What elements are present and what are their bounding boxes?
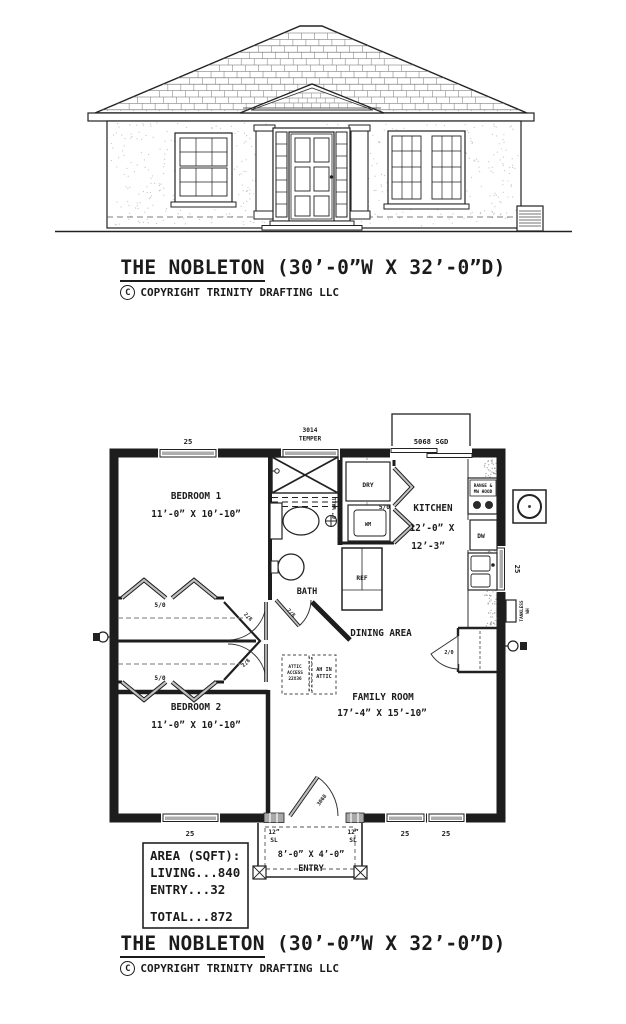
plan-dimensions: (30’-0”W X 32’-0”D) <box>265 932 506 955</box>
bedroom1-dims: 11’-0” X 10’-10” <box>151 509 241 520</box>
kitchen-sink <box>468 553 497 590</box>
elevation-window-left <box>171 133 236 207</box>
window-bedroom2: 25 <box>161 811 220 838</box>
sgd-label: 5068 SGD <box>414 437 449 446</box>
title-block-bottom: THE NOBLETON (30’-0”W X 32’-0”D) C COPYR… <box>0 932 626 976</box>
air-handler-label: AH IN <box>316 667 332 673</box>
window-bath-temper: 3014 TEMPER <box>281 427 340 460</box>
wall-note: 6” WALL <box>332 497 338 519</box>
air-handler-label2: ATTIC <box>316 674 332 680</box>
window-type-label: TEMPER <box>299 436 322 443</box>
tankless-label2: WH <box>525 608 531 614</box>
washer-label: WM <box>365 522 371 528</box>
bath-label: BATH <box>297 587 317 597</box>
pantry-door-size: 2/0 <box>444 650 453 656</box>
window-bedroom1: 25 <box>158 437 218 460</box>
closet-door-size: 5/0 <box>154 675 165 682</box>
area-entry: ENTRY...32 <box>150 882 225 897</box>
fridge-label: REF <box>356 575 367 582</box>
plan-name: THE NOBLETON <box>120 256 264 282</box>
ac-unit <box>517 206 543 231</box>
window-size-label: 25 <box>513 565 522 574</box>
dining-label: DINING AREA <box>350 628 412 639</box>
tankless-label: TANKLESS <box>519 600 525 622</box>
window-kitchen: 25 <box>494 546 522 592</box>
kitchen-dims1: 12’-0” X <box>410 523 455 534</box>
sidelight-label: SL <box>270 837 278 844</box>
attic-access-label2: ACCESS <box>287 670 303 676</box>
window-size-label: 25 <box>442 829 451 838</box>
area-total: TOTAL...872 <box>150 909 233 924</box>
plan-dimensions: (30’-0”W X 32’-0”D) <box>265 256 506 279</box>
bedroom1-label: BEDROOM 1 <box>171 491 222 502</box>
entry-label: ENTRY <box>298 864 324 874</box>
sidelight-label: 12” <box>347 829 358 836</box>
copyright-text: COPYRIGHT TRINITY DRAFTING LLC <box>140 962 339 975</box>
well-tank <box>513 490 546 523</box>
floor-plan-drawing: 25 3014 TEMPER 5068 SGD 25 25 25 2 <box>0 408 626 938</box>
entry-dims-label: 8’-0” X 4’-0” <box>278 850 345 860</box>
entry-step-1 <box>270 221 354 226</box>
elevation-window-right <box>384 131 469 209</box>
range-label2: MW HOOD <box>474 489 493 495</box>
door-knob <box>330 175 333 178</box>
plan-name: THE NOBLETON <box>120 932 264 958</box>
copyright-text: COPYRIGHT TRINITY DRAFTING LLC <box>140 286 339 299</box>
front-entry-door <box>262 128 362 230</box>
area-table-header: AREA (SQFT): <box>150 848 240 863</box>
closet-door-size: 5/0 <box>154 602 165 609</box>
family-dims: 17’-4” X 15’-10” <box>337 708 427 719</box>
sidelight-label: SL <box>349 837 357 844</box>
window-family-2: 25 <box>427 811 466 838</box>
copyright-line: C COPYRIGHT TRINITY DRAFTING LLC <box>120 961 505 976</box>
porch-post-left <box>253 866 266 879</box>
attic-access-label3: 22X36 <box>288 676 302 682</box>
bedroom2-label: BEDROOM 2 <box>171 702 221 713</box>
area-living: LIVING...840 <box>150 865 240 880</box>
roof-fascia <box>88 113 534 121</box>
porch-post-right <box>354 866 367 879</box>
drawing-sheet: THE NOBLETON (30’-0”W X 32’-0”D) C COPYR… <box>0 0 626 1024</box>
range-label: RANGE & <box>474 483 493 489</box>
family-label: FAMILY ROOM <box>352 692 414 703</box>
sidelight-label: 12” <box>268 829 279 836</box>
plan-title: THE NOBLETON (30’-0”W X 32’-0”D) <box>120 932 505 955</box>
area-table: AREA (SQFT): LIVING...840 ENTRY...32 TOT… <box>143 843 248 928</box>
dishwasher-label: DW <box>477 533 485 540</box>
window-family-1: 25 <box>385 811 426 838</box>
window-size-label: 25 <box>186 829 195 838</box>
attic-access-label: ATTIC <box>288 664 302 670</box>
window-size-label: 25 <box>401 829 410 838</box>
copyright-line: C COPYRIGHT TRINITY DRAFTING LLC <box>120 285 505 300</box>
window-size-label: 25 <box>184 437 193 446</box>
kitchen-dims2: 12’-3” <box>411 541 445 552</box>
laundry-door-size: 5/0 <box>379 504 390 511</box>
hose-bib-right <box>505 641 527 651</box>
copyright-icon: C <box>120 285 135 300</box>
entry-porch: 12” SL 12” SL 8’-0” X 4’-0” ENTRY <box>253 823 367 879</box>
tankless-water-heater <box>506 600 516 622</box>
entry-step-2 <box>262 226 362 231</box>
plan-title: THE NOBLETON (30’-0”W X 32’-0”D) <box>120 256 505 279</box>
copyright-icon: C <box>120 961 135 976</box>
title-block-top: THE NOBLETON (30’-0”W X 32’-0”D) C COPYR… <box>0 256 626 300</box>
bedroom2-dims: 11’-0” X 10’-10” <box>151 720 241 731</box>
front-elevation-drawing <box>0 12 626 260</box>
kitchen-label: KITCHEN <box>413 503 453 514</box>
dryer-label: DRY <box>362 482 373 489</box>
window-size-label: 3014 <box>303 427 318 434</box>
